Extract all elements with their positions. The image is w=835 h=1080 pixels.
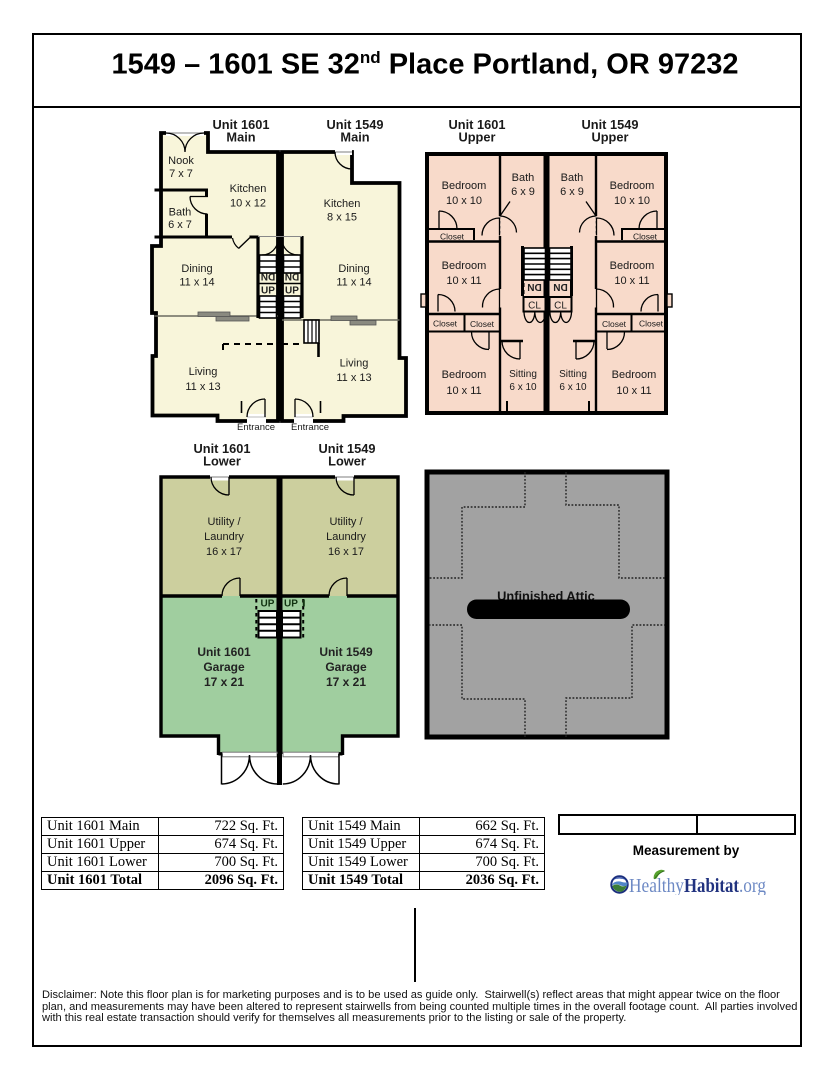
svg-text:Bedroom: Bedroom xyxy=(610,180,655,192)
svg-text:Bath: Bath xyxy=(561,172,584,184)
svg-text:CL: CL xyxy=(528,301,541,312)
svg-text:Bath: Bath xyxy=(512,172,535,184)
svg-text:10 x 11: 10 x 11 xyxy=(446,275,481,287)
svg-text:11 x 14: 11 x 14 xyxy=(179,277,214,289)
svg-text:11 x 13: 11 x 13 xyxy=(185,381,220,393)
svg-text:Lower: Lower xyxy=(328,454,366,469)
svg-text:Laundry: Laundry xyxy=(326,531,366,543)
svg-text:17 x 21: 17 x 21 xyxy=(326,675,366,689)
svg-text:Kitchen: Kitchen xyxy=(324,198,361,210)
svg-text:Sitting: Sitting xyxy=(559,369,587,380)
svg-text:7 x 7: 7 x 7 xyxy=(169,168,193,180)
svg-text:Main: Main xyxy=(340,130,369,145)
svg-text:Unit 1601: Unit 1601 xyxy=(197,645,251,659)
svg-text:DN: DN xyxy=(285,271,299,282)
svg-text:Unit 1549: Unit 1549 xyxy=(319,645,373,659)
svg-text:11 x 14: 11 x 14 xyxy=(336,277,371,289)
svg-text:Closet: Closet xyxy=(470,319,495,329)
svg-text:Nook: Nook xyxy=(168,155,194,167)
svg-text:8 x 15: 8 x 15 xyxy=(327,212,357,224)
svg-text:Closet: Closet xyxy=(433,319,458,329)
svg-text:16 x 17: 16 x 17 xyxy=(206,546,242,558)
svg-text:Bedroom: Bedroom xyxy=(610,260,655,272)
svg-text:10 x 11: 10 x 11 xyxy=(616,385,651,397)
svg-text:UP: UP xyxy=(261,286,275,297)
svg-text:Closet: Closet xyxy=(639,319,664,329)
svg-text:.org: .org xyxy=(739,875,766,895)
svg-text:Kitchen: Kitchen xyxy=(230,183,267,195)
svg-text:Bedroom: Bedroom xyxy=(612,369,657,381)
svg-text:Habitat: Habitat xyxy=(684,875,739,895)
svg-text:Utility /: Utility / xyxy=(330,516,364,528)
svg-text:16 x 17: 16 x 17 xyxy=(328,546,364,558)
svg-text:10 x 12: 10 x 12 xyxy=(230,198,266,210)
svg-text:6 x 9: 6 x 9 xyxy=(560,186,584,198)
svg-text:Bedroom: Bedroom xyxy=(442,369,487,381)
svg-text:UP: UP xyxy=(261,599,275,610)
svg-text:Closet: Closet xyxy=(633,232,658,242)
svg-text:CL: CL xyxy=(554,301,567,312)
svg-text:10 x 11: 10 x 11 xyxy=(614,275,649,287)
svg-text:Sitting: Sitting xyxy=(509,369,537,380)
svg-text:6 x 10: 6 x 10 xyxy=(559,382,587,393)
svg-text:Bath: Bath xyxy=(169,207,192,219)
svg-text:Laundry: Laundry xyxy=(204,531,244,543)
svg-text:Dining: Dining xyxy=(338,263,369,275)
svg-text:DN: DN xyxy=(553,281,567,292)
svg-text:Utility /: Utility / xyxy=(208,516,242,528)
svg-text:UP: UP xyxy=(284,599,298,610)
svg-text:DN: DN xyxy=(527,281,541,292)
svg-text:UP: UP xyxy=(285,286,299,297)
svg-text:17 x 21: 17 x 21 xyxy=(204,675,244,689)
svg-text:Healthy: Healthy xyxy=(629,875,684,895)
svg-text:10 x 10: 10 x 10 xyxy=(614,195,650,207)
svg-text:Main: Main xyxy=(226,130,255,145)
svg-text:Living: Living xyxy=(340,358,369,370)
svg-text:11 x 13: 11 x 13 xyxy=(336,372,371,384)
svg-text:10 x 10: 10 x 10 xyxy=(446,195,482,207)
svg-text:6 x 7: 6 x 7 xyxy=(168,219,192,231)
svg-text:Closet: Closet xyxy=(440,232,465,242)
svg-text:Bedroom: Bedroom xyxy=(442,260,487,272)
svg-text:Bedroom: Bedroom xyxy=(442,180,487,192)
svg-text:Upper: Upper xyxy=(459,130,496,145)
svg-text:6 x 10: 6 x 10 xyxy=(509,382,537,393)
svg-text:Lower: Lower xyxy=(203,454,241,469)
svg-text:Entrance: Entrance xyxy=(291,422,329,433)
svg-text:Garage: Garage xyxy=(325,660,367,674)
svg-text:Dining: Dining xyxy=(181,263,212,275)
svg-text:DN: DN xyxy=(261,271,275,282)
svg-text:Entrance: Entrance xyxy=(237,422,275,433)
svg-text:6 x 9: 6 x 9 xyxy=(511,186,535,198)
svg-text:Living: Living xyxy=(189,366,218,378)
svg-text:Garage: Garage xyxy=(203,660,245,674)
svg-text:Upper: Upper xyxy=(592,130,629,145)
svg-text:10 x 11: 10 x 11 xyxy=(446,385,481,397)
svg-text:Closet: Closet xyxy=(602,319,627,329)
